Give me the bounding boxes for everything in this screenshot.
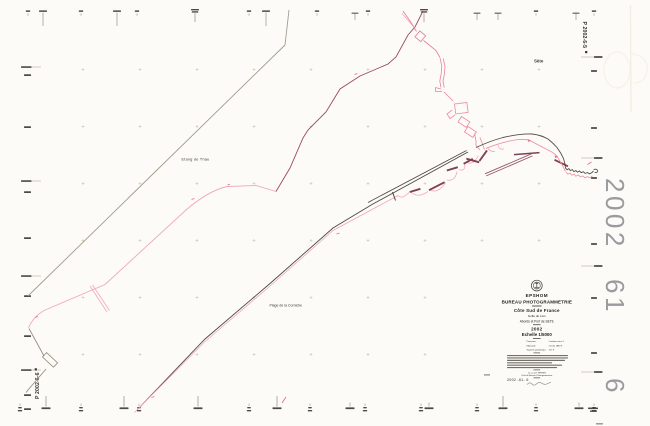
svg-text:6: 6 bbox=[600, 378, 630, 392]
svg-text:Projection: Projection bbox=[527, 340, 537, 343]
svg-text:P 2002-6-6: P 2002-6-6 bbox=[35, 372, 41, 399]
svg-text:Etang de Thau: Etang de Thau bbox=[182, 158, 210, 162]
svg-text:Plage de la Corniche: Plage de la Corniche bbox=[270, 304, 303, 308]
svg-text:Sète: Sète bbox=[534, 59, 544, 64]
svg-text:Golfe du Lion: Golfe du Lion bbox=[528, 314, 546, 318]
svg-text:2002 -61- 6: 2002 -61- 6 bbox=[507, 378, 529, 382]
svg-text:Chef du Bureau Photogrammetrie: Chef du Bureau Photogrammetrie bbox=[521, 374, 553, 377]
svg-text:Echelle 1/5000: Echelle 1/5000 bbox=[522, 332, 553, 337]
svg-text:P 2002-6-5: P 2002-6-5 bbox=[581, 22, 587, 49]
svg-text:Côte Sud de France: Côte Sud de France bbox=[514, 308, 560, 313]
svg-text:EPSHOM: EPSHOM bbox=[526, 293, 548, 298]
svg-text:2002: 2002 bbox=[531, 327, 543, 332]
svg-text:Le v.a.e.P. PERRIN: Le v.a.e.P. PERRIN bbox=[528, 372, 546, 374]
svg-text:: N.T.F.: : N.T.F. bbox=[548, 350, 555, 352]
svg-text:61: 61 bbox=[600, 279, 630, 315]
svg-text:Ellipsoïde: Ellipsoïde bbox=[527, 345, 537, 347]
svg-text:Abords et Port de SETE: Abords et Port de SETE bbox=[520, 319, 554, 323]
svg-text:: Clarke 1880 F: : Clarke 1880 F bbox=[548, 344, 563, 347]
svg-text:2002: 2002 bbox=[600, 178, 630, 250]
svg-text:BUREAU PHOTOGRAMMETRIE: BUREAU PHOTOGRAMMETRIE bbox=[502, 299, 572, 304]
svg-text:Système géodésique: Système géodésique bbox=[527, 349, 547, 352]
svg-text:: Lambert zone 3: : Lambert zone 3 bbox=[548, 340, 564, 343]
